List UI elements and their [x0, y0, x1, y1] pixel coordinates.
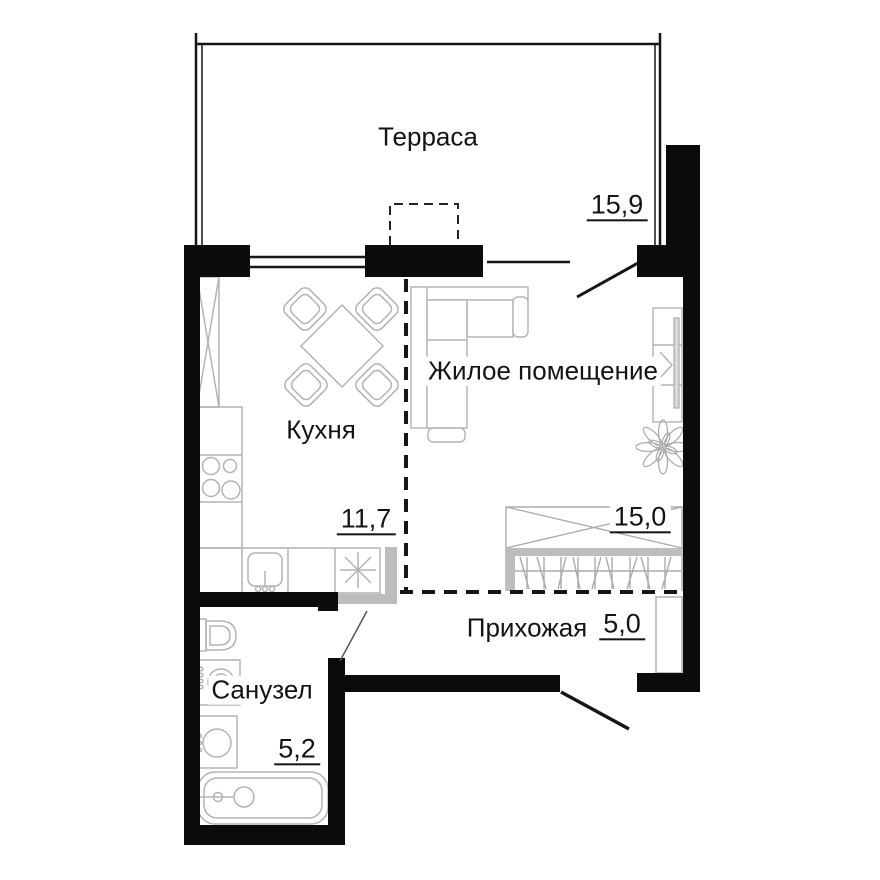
wall-kitchen-south — [184, 592, 337, 607]
wall-top-left — [184, 245, 250, 277]
room-label-terrace: Терраса — [375, 123, 481, 152]
toilet-icon — [198, 619, 236, 651]
floor-plan: Терраса 15,9 Кухня 11,7 Жилое помещение … — [0, 0, 880, 880]
wall-right — [683, 277, 700, 692]
room-area-living: 15,0 — [610, 502, 671, 533]
room-area-kitchen: 11,7 — [337, 504, 396, 535]
room-label-kitchen: Кухня — [283, 416, 359, 445]
bathtub-icon — [198, 772, 328, 824]
room-area-bathroom: 5,2 — [274, 734, 320, 765]
kitchen-sink-icon — [248, 553, 282, 592]
wall-kitchen-south-end — [318, 592, 338, 611]
room-label-living: Жилое помещение — [425, 357, 661, 386]
room-area-hallway: 5,0 — [599, 609, 645, 640]
room-label-bathroom: Санузел — [208, 676, 315, 705]
kitchen-counter-left — [197, 407, 242, 548]
wall-pillar — [666, 145, 700, 247]
kitchen-tall-cabinet-icon — [197, 277, 219, 407]
entry-door-leaf — [561, 692, 629, 729]
bathroom-sink-icon — [197, 716, 237, 768]
wall-top-right — [637, 245, 700, 277]
stove-icon — [203, 458, 241, 500]
room-label-hallway: Прихожая — [464, 614, 590, 643]
balcony-door-leaf — [577, 263, 638, 297]
wall-bathroom-bottom — [184, 825, 345, 845]
plant-icon — [636, 420, 690, 474]
bathroom-door-leaf — [340, 611, 367, 661]
wall-hallway-bottom-right — [637, 673, 700, 692]
walls — [184, 145, 700, 845]
bathroom-fixtures — [197, 619, 328, 824]
wall-hallway-bottom-left — [328, 675, 560, 692]
hallway-cabinet-icon — [656, 597, 682, 673]
wall-left — [184, 245, 200, 845]
terrace-dashed-box — [390, 204, 458, 245]
hob-icon — [340, 552, 376, 588]
hangers-icon — [520, 557, 671, 589]
wall-top-middle — [365, 245, 483, 277]
room-area-terrace: 15,9 — [587, 190, 648, 221]
